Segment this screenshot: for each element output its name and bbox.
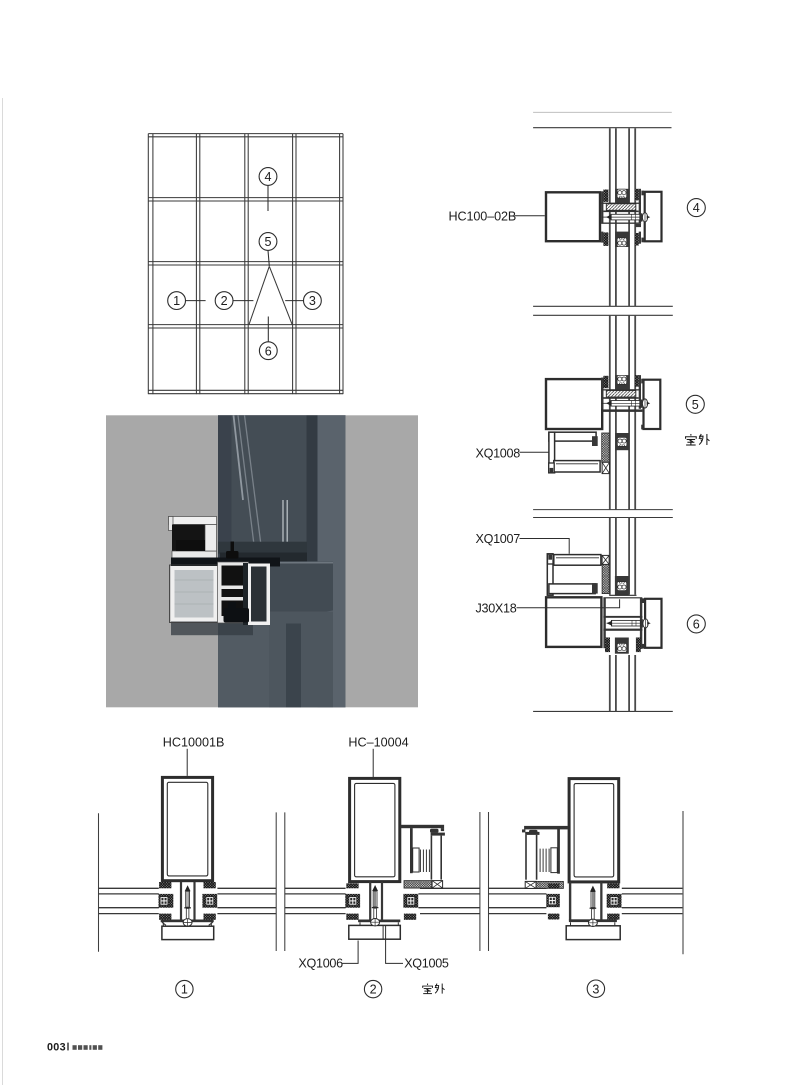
svg-text:6: 6 [265,344,272,358]
svg-text:HC–10004: HC–10004 [348,736,408,750]
svg-text:2: 2 [370,983,377,997]
svg-text:J30X18: J30X18 [476,601,517,615]
svg-text:5: 5 [264,235,271,249]
svg-text:1: 1 [173,294,180,308]
svg-text:3: 3 [592,982,599,996]
svg-text:3: 3 [309,294,316,308]
svg-text:4: 4 [693,201,700,215]
svg-text:HC10001B: HC10001B [163,736,225,750]
svg-text:1: 1 [181,983,188,997]
svg-text:2: 2 [221,294,228,308]
svg-text:5: 5 [692,398,699,412]
svg-text:XQ1007: XQ1007 [476,532,521,546]
svg-text:XQ1008: XQ1008 [476,446,521,460]
svg-text:XQ1006: XQ1006 [298,957,343,971]
svg-text:6: 6 [693,618,700,632]
svg-text:XQ1005: XQ1005 [404,957,449,971]
svg-text:HC100–02B: HC100–02B [449,210,517,224]
svg-text:4: 4 [264,170,271,184]
svg-text:003: 003 [47,1042,66,1054]
